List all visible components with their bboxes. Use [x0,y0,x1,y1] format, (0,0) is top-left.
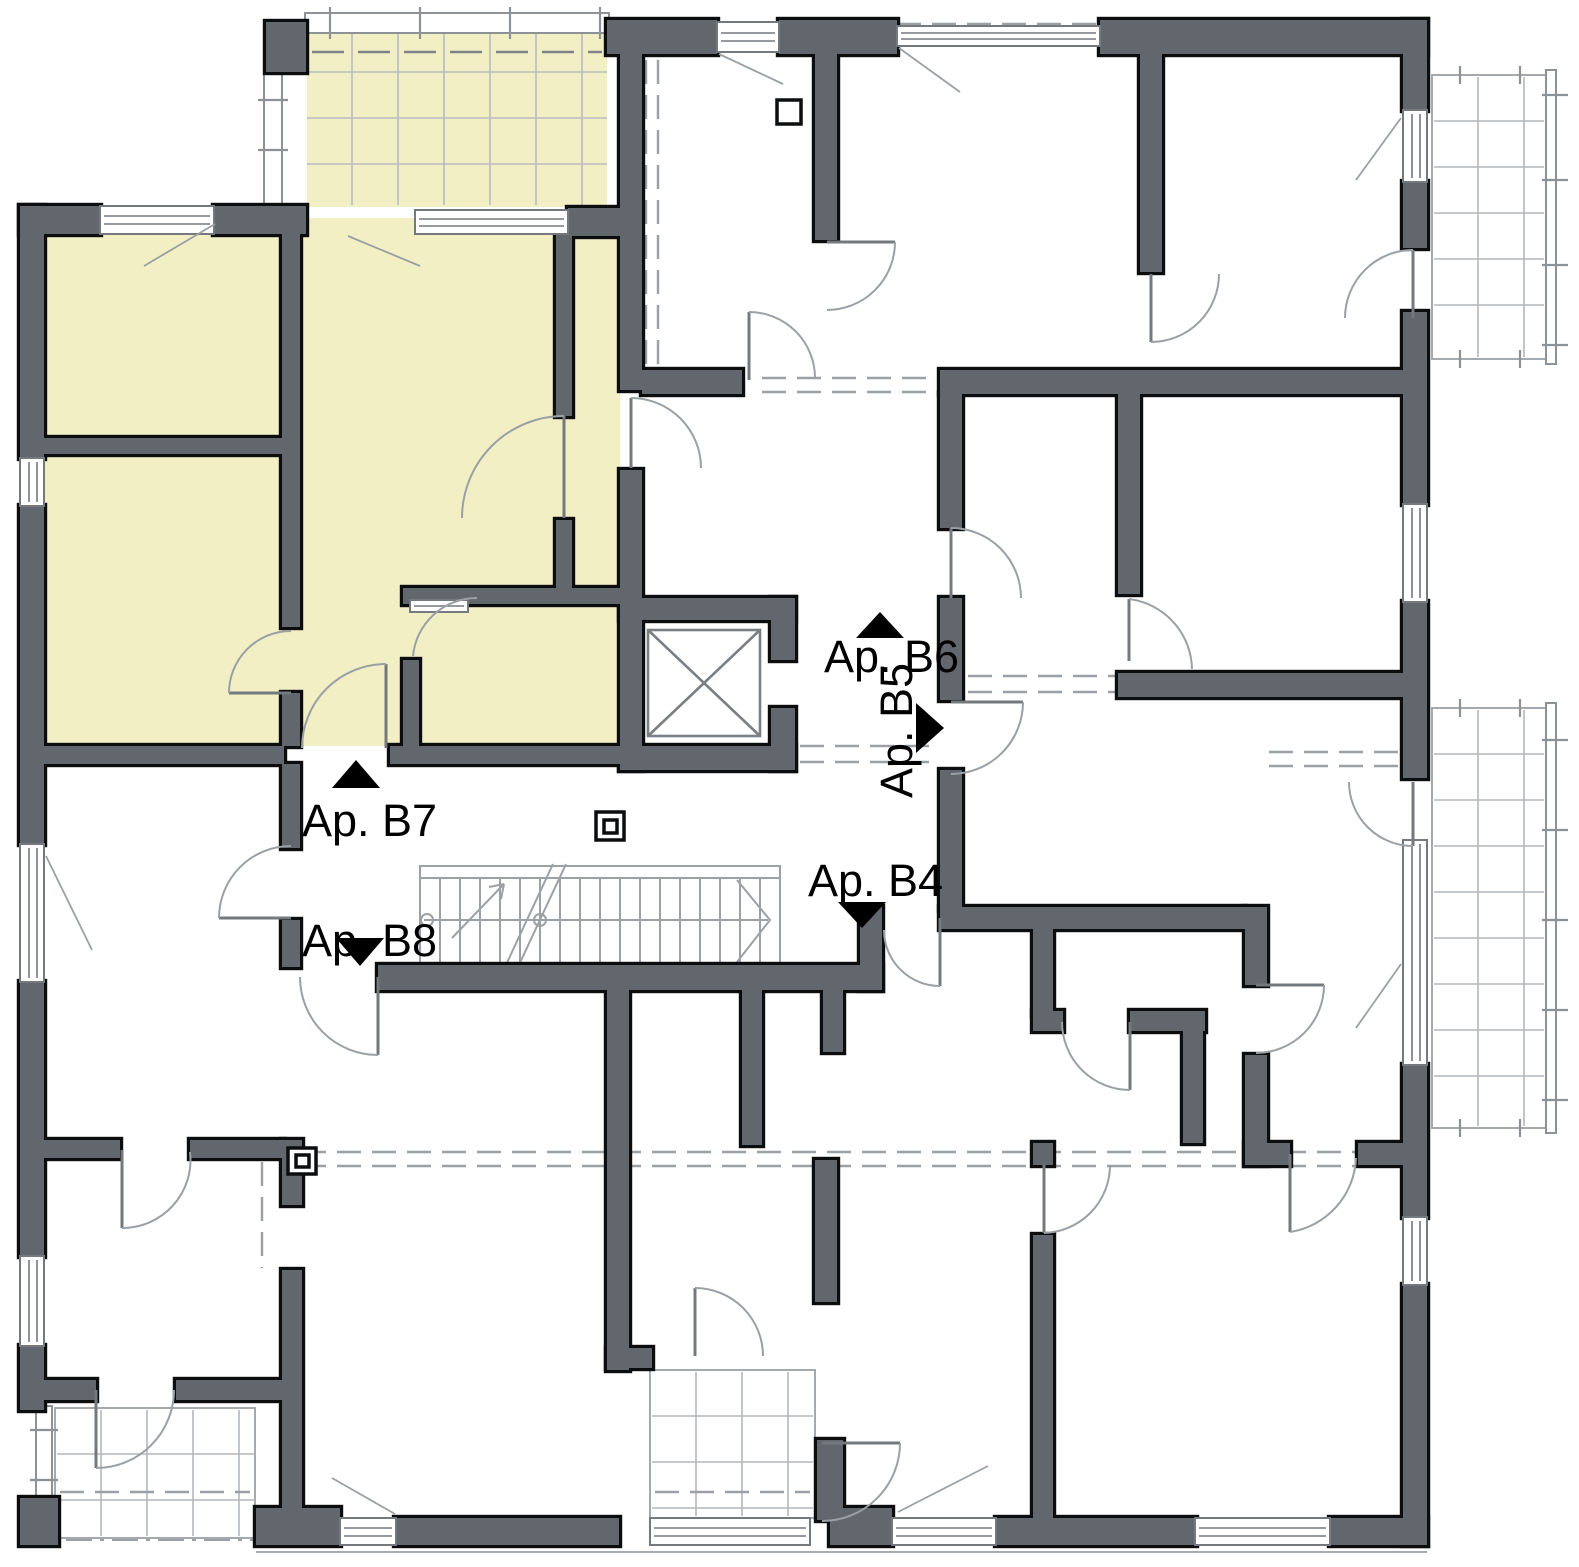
floor-plan-drawing: Ap. B7 Ap. B8 Ap. B6 Ap. B5 Ap. B4 [0,0,1579,1567]
unit-label-b7: Ap. B7 [302,760,437,846]
right-lower-balcony [1432,699,1568,1137]
label-ap-b5: Ap. B5 [871,663,922,798]
entry-marker-b7-up [332,760,380,788]
unit-label-b8: Ap. B8 [302,915,437,966]
label-ap-b7: Ap. B7 [302,795,437,846]
top-balcony [258,7,609,207]
staircase [420,864,780,967]
elevator-shaft [648,630,760,736]
label-ap-b4: Ap. B4 [808,855,943,906]
balcony-railing [305,13,609,33]
entry-marker-b5-right [916,703,944,753]
unit-label-b5: Ap. B5 [871,663,944,798]
highlighted-unit-fill [44,218,620,746]
floor-plan-page: Ap. B7 Ap. B8 Ap. B6 Ap. B5 Ap. B4 [0,0,1579,1567]
entry-lobby [650,1370,815,1518]
right-upper-balcony [1432,66,1568,368]
